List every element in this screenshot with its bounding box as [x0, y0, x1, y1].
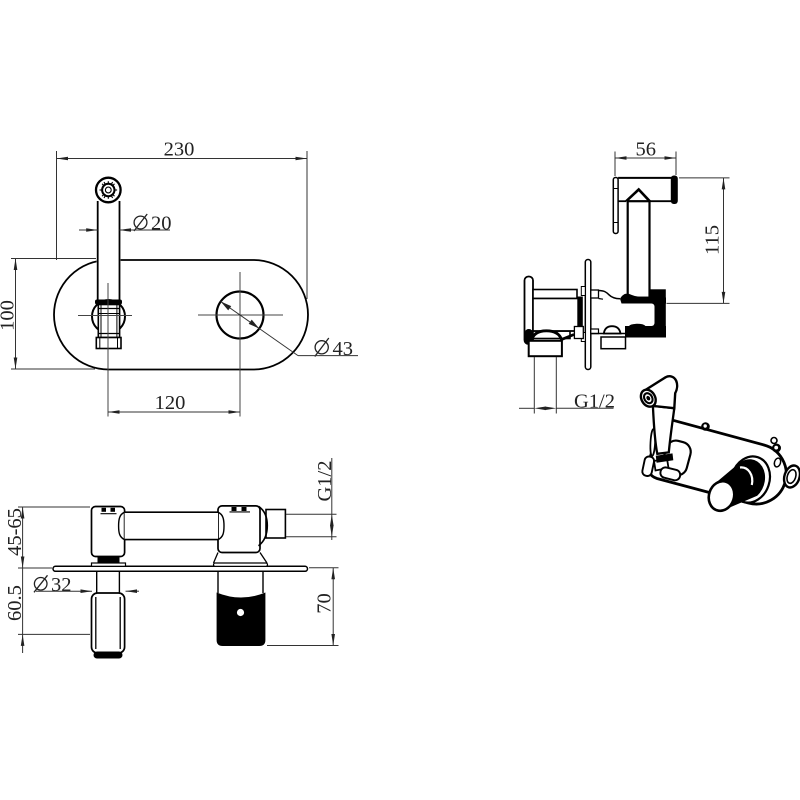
- svg-text:G1/2: G1/2: [574, 390, 615, 412]
- svg-text:115: 115: [702, 225, 724, 255]
- svg-text:70: 70: [313, 593, 335, 614]
- svg-text:100: 100: [0, 300, 18, 331]
- svg-text:43: 43: [333, 338, 354, 360]
- svg-text:60.5: 60.5: [4, 585, 26, 621]
- svg-text:120: 120: [155, 392, 186, 414]
- svg-text:G1/2: G1/2: [314, 461, 336, 502]
- svg-text:32: 32: [51, 574, 72, 596]
- svg-text:45-65: 45-65: [4, 508, 26, 556]
- svg-text:20: 20: [151, 213, 172, 235]
- svg-text:230: 230: [164, 139, 195, 161]
- svg-text:56: 56: [636, 139, 657, 161]
